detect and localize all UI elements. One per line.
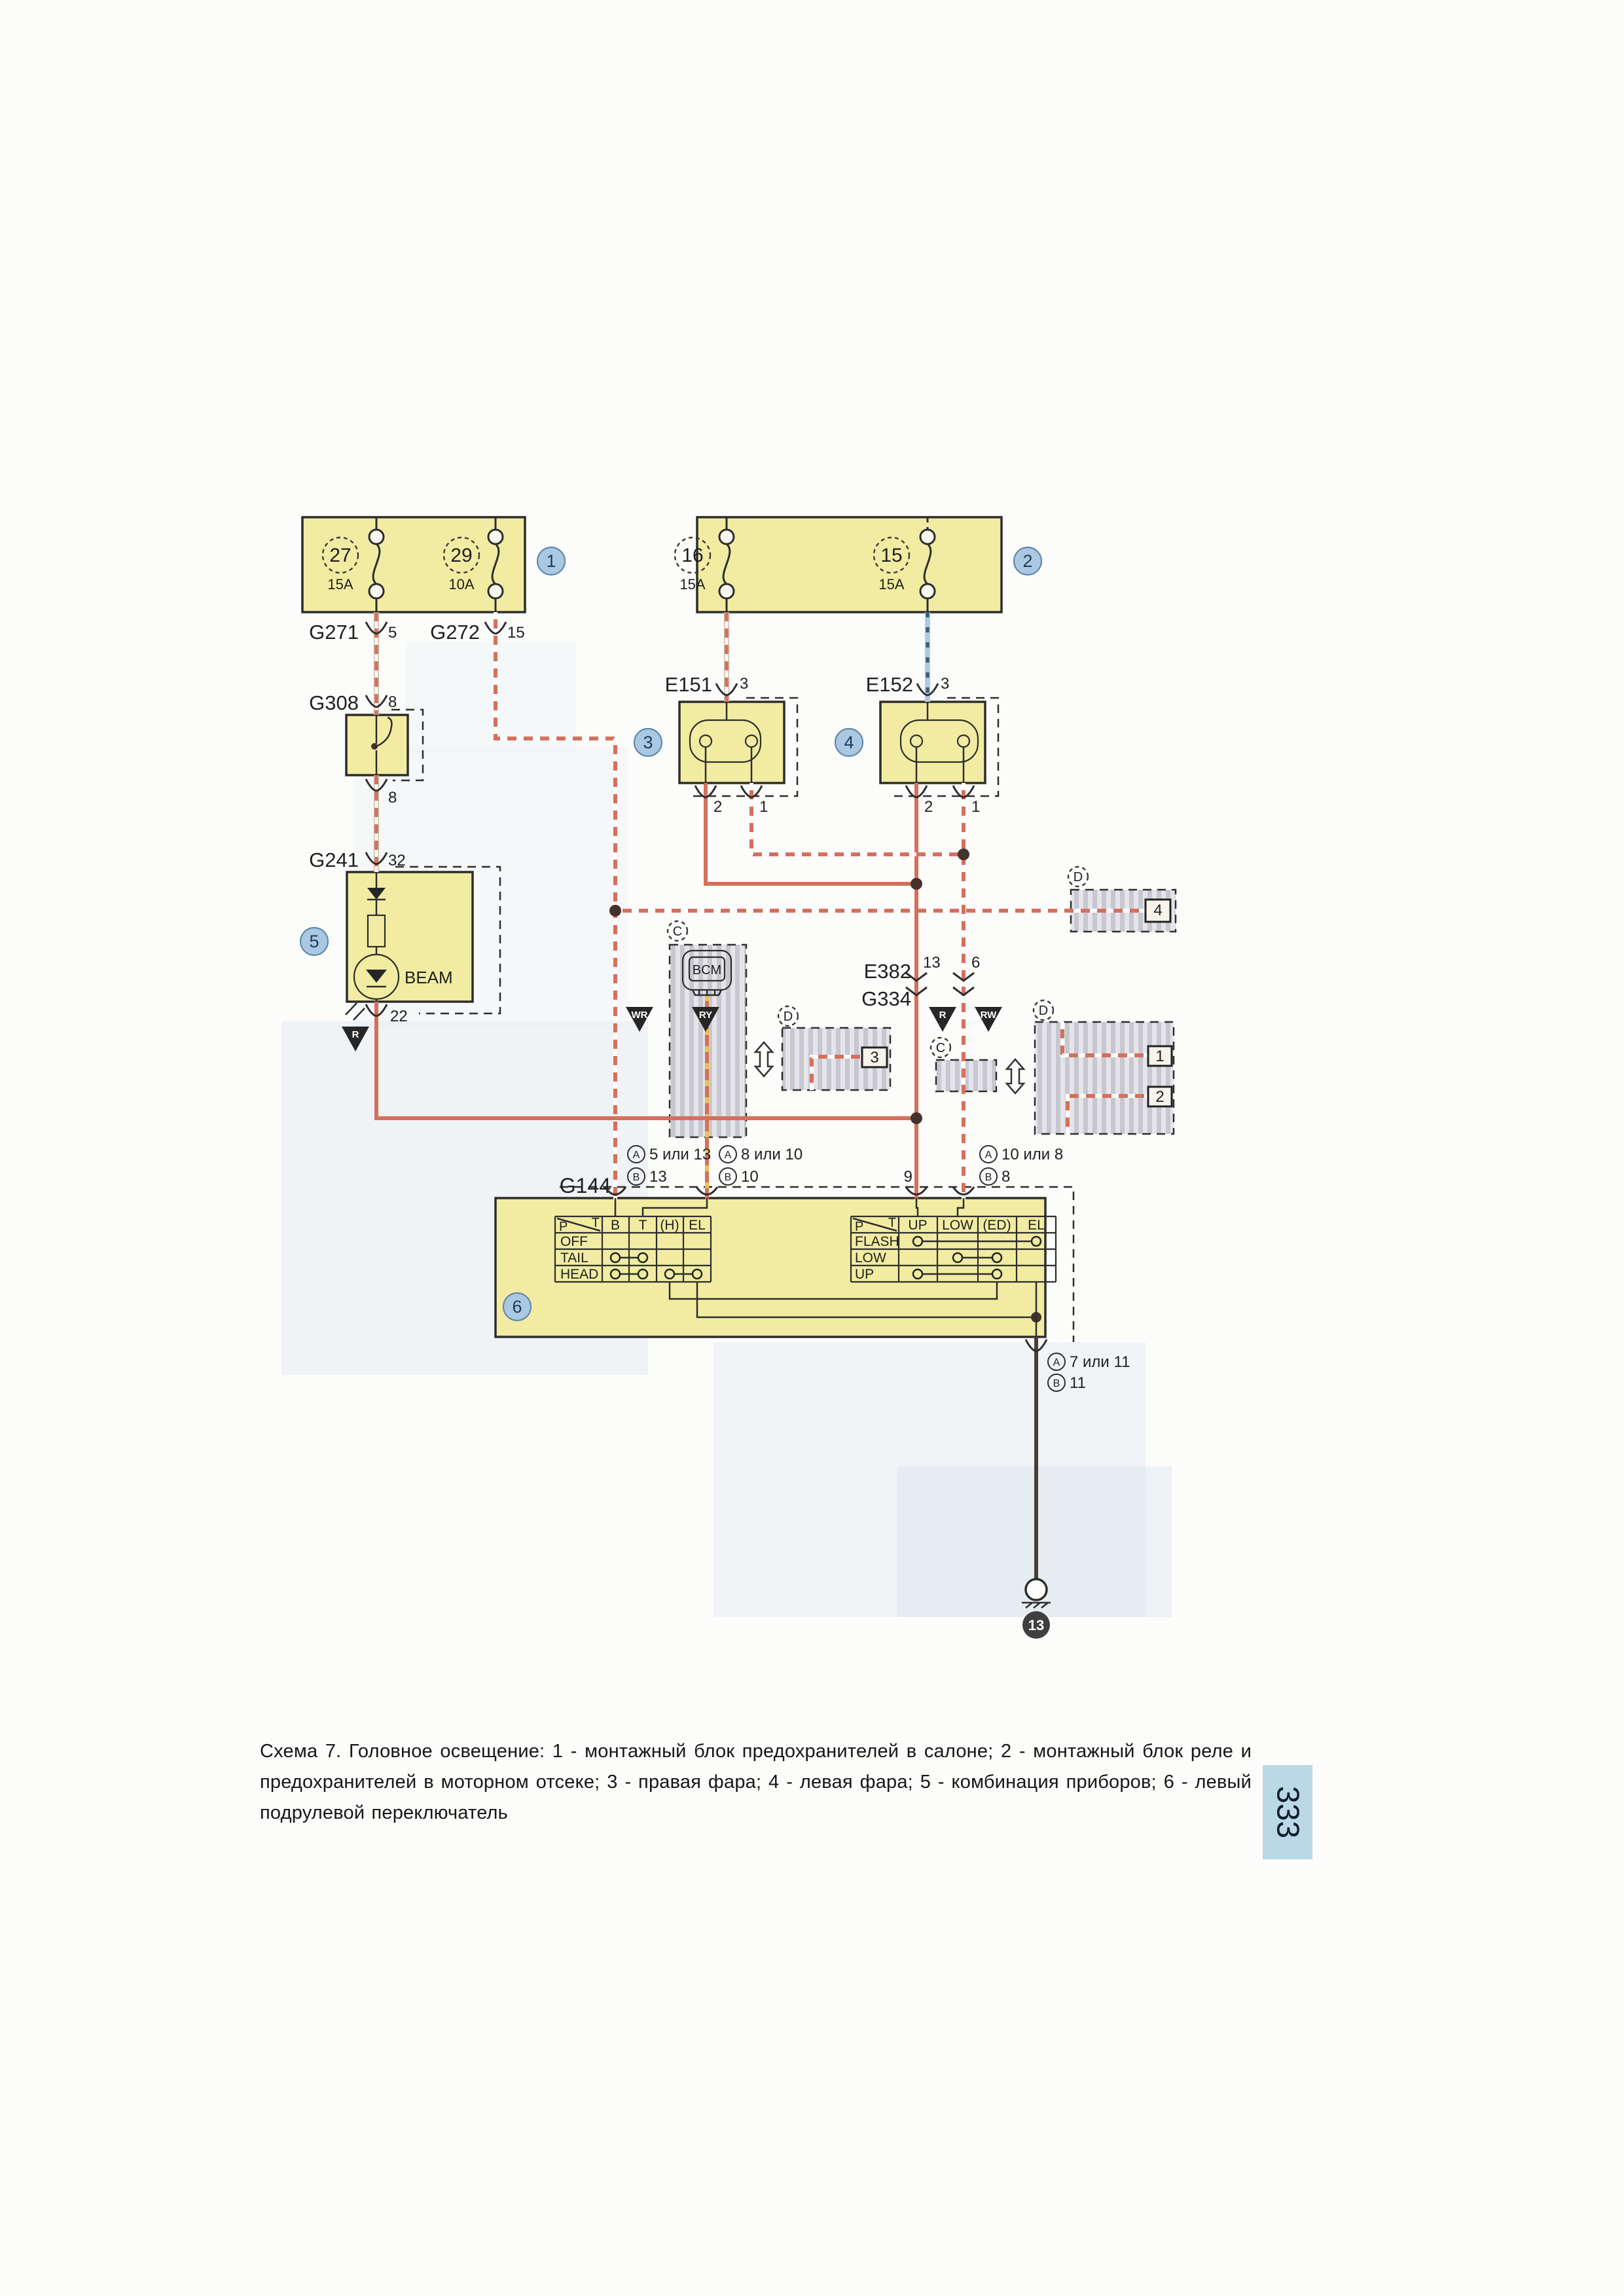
svg-text:6: 6 <box>512 1297 522 1317</box>
svg-text:1: 1 <box>546 551 556 571</box>
svg-text:T: T <box>592 1216 600 1230</box>
svg-text:UP: UP <box>855 1267 874 1282</box>
svg-text:B: B <box>1053 1378 1060 1389</box>
svg-text:LOW: LOW <box>855 1250 886 1266</box>
fuse-27-number: 27 <box>329 545 351 566</box>
terminal-3: 3 <box>870 1049 878 1066</box>
fuse-27-amp: 15A <box>327 576 353 592</box>
fuse-29-number: 29 <box>450 545 472 566</box>
ground-ring-icon <box>1026 1579 1047 1600</box>
fuse-29-amp: 10A <box>448 576 474 592</box>
wire-code-r-high: R <box>929 1007 956 1032</box>
svg-text:B: B <box>611 1218 620 1233</box>
svg-text:1: 1 <box>971 798 980 816</box>
svg-text:2: 2 <box>924 798 933 816</box>
svg-text:3: 3 <box>941 675 949 693</box>
svg-text:E382: E382 <box>864 960 911 983</box>
svg-text:G334: G334 <box>861 987 911 1010</box>
svg-text:C: C <box>673 924 682 939</box>
svg-text:(ED): (ED) <box>983 1218 1011 1233</box>
svg-text:T: T <box>639 1218 647 1233</box>
svg-text:10: 10 <box>741 1168 759 1186</box>
svg-text:A: A <box>725 1150 732 1161</box>
svg-text:B: B <box>633 1172 640 1183</box>
connector-g272: G272 15 <box>430 621 525 644</box>
svg-text:T: T <box>888 1216 896 1230</box>
callout-2: 2 <box>1014 547 1041 575</box>
pin-22: 22 <box>390 1008 408 1025</box>
connector-g271: G271 5 <box>309 621 397 644</box>
svg-text:13: 13 <box>923 954 941 972</box>
terminal-4: 4 <box>1153 902 1162 919</box>
svg-text:UP: UP <box>908 1218 927 1233</box>
svg-text:32: 32 <box>388 852 406 869</box>
beam-label: BEAM <box>405 968 453 987</box>
page-number: 333 <box>1270 1786 1306 1838</box>
connector-g241: G241 32 <box>309 848 406 871</box>
svg-text:D: D <box>1039 1004 1048 1018</box>
svg-text:5 или 13: 5 или 13 <box>649 1146 711 1163</box>
bcm-label: BCM <box>693 963 721 977</box>
variant-boxes <box>670 890 1176 1137</box>
callout-4: 4 <box>835 729 863 756</box>
fuse-box-engine <box>697 517 1001 612</box>
svg-text:3: 3 <box>643 733 653 752</box>
svg-text:4: 4 <box>844 733 854 752</box>
svg-text:HEAD: HEAD <box>560 1267 598 1282</box>
svg-text:G308: G308 <box>309 691 359 714</box>
svg-text:7 или 11: 7 или 11 <box>1070 1353 1130 1371</box>
svg-text:5: 5 <box>388 624 397 642</box>
svg-text:R: R <box>939 1010 947 1021</box>
right-headlamp-box <box>679 702 784 783</box>
svg-text:G144: G144 <box>560 1174 611 1197</box>
svg-text:9: 9 <box>904 1168 912 1186</box>
fuse-15-number: 15 <box>880 545 902 566</box>
callout-5: 5 <box>300 928 328 955</box>
callout-1: 1 <box>537 547 565 575</box>
svg-text:EL: EL <box>689 1218 706 1233</box>
svg-text:R: R <box>352 1029 359 1040</box>
svg-text:LOW: LOW <box>942 1218 973 1233</box>
svg-text:11: 11 <box>1070 1374 1086 1392</box>
page-number-tab: 333 <box>1263 1765 1312 1859</box>
svg-text:13: 13 <box>649 1168 667 1186</box>
svg-text:EL: EL <box>1028 1218 1045 1233</box>
variant-swap-arrow <box>1007 1059 1024 1093</box>
wire-code-rw: RW <box>975 1007 1002 1032</box>
svg-text:5: 5 <box>309 932 319 951</box>
svg-text:10 или 8: 10 или 8 <box>1001 1146 1063 1163</box>
terminal-1: 1 <box>1155 1048 1164 1065</box>
svg-text:6: 6 <box>971 954 980 972</box>
wiring-diagram: 27 15A 29 10A 1 16 15A 15 15A 2 G271 5 G… <box>0 0 1624 2296</box>
svg-text:8: 8 <box>388 693 397 711</box>
svg-text:A: A <box>985 1150 992 1161</box>
svg-text:RW: RW <box>981 1010 998 1021</box>
fuse-16-number: 16 <box>681 545 703 566</box>
variant-box-terminal12 <box>1035 1022 1174 1134</box>
svg-text:1: 1 <box>759 798 768 816</box>
terminal-2: 2 <box>1155 1088 1164 1106</box>
manual-page: 27 15A 29 10A 1 16 15A 15 15A 2 G271 5 G… <box>0 0 1624 2296</box>
svg-text:RY: RY <box>699 1010 712 1021</box>
svg-text:2: 2 <box>713 798 722 816</box>
figure-caption: Схема 7. Головное освещение: 1 - монтажн… <box>260 1736 1252 1829</box>
fuse-16-amp: 15A <box>679 576 705 592</box>
fuse-15-amp: 15A <box>878 576 904 592</box>
svg-text:B: B <box>985 1172 992 1183</box>
svg-text:8 или 10: 8 или 10 <box>741 1146 803 1163</box>
svg-text:E151: E151 <box>665 673 712 696</box>
svg-text:P: P <box>559 1220 568 1234</box>
svg-text:8: 8 <box>1001 1168 1010 1186</box>
callout-6: 6 <box>503 1293 531 1321</box>
svg-text:A: A <box>633 1150 640 1161</box>
variant-box-c-small <box>936 1060 996 1091</box>
svg-text:2: 2 <box>1022 551 1032 571</box>
svg-text:B: B <box>725 1172 732 1183</box>
wire-low-beam <box>751 783 964 1199</box>
svg-text:FLASH: FLASH <box>855 1234 899 1249</box>
svg-text:OFF: OFF <box>560 1234 588 1249</box>
svg-text:E152: E152 <box>866 673 913 696</box>
svg-text:D: D <box>784 1010 793 1024</box>
variant-swap-arrow <box>755 1042 772 1076</box>
svg-text:3: 3 <box>740 675 748 693</box>
svg-text:TAIL: TAIL <box>560 1250 588 1266</box>
svg-text:8: 8 <box>388 789 397 807</box>
svg-text:A: A <box>1053 1357 1060 1368</box>
callout-3: 3 <box>634 729 662 756</box>
svg-text:P: P <box>855 1220 863 1234</box>
svg-text:D: D <box>1074 870 1083 884</box>
svg-text:G271: G271 <box>309 621 359 644</box>
svg-text:WR: WR <box>632 1010 648 1021</box>
svg-text:15: 15 <box>507 624 525 642</box>
svg-text:(H): (H) <box>660 1218 679 1233</box>
svg-text:G272: G272 <box>430 621 480 644</box>
svg-text:C: C <box>936 1041 945 1055</box>
svg-text:G241: G241 <box>309 848 359 871</box>
svg-text:13: 13 <box>1028 1617 1044 1633</box>
